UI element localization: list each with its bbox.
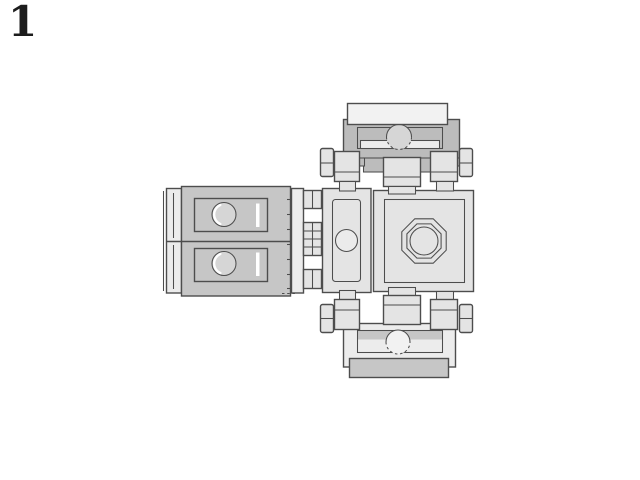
top-cap <box>348 104 448 125</box>
connector-pin <box>335 152 360 182</box>
pin-foot <box>437 182 454 192</box>
pin-foot <box>340 182 356 192</box>
recess-highlight <box>256 253 260 277</box>
top-bracket <box>321 104 473 195</box>
recess-highlight <box>256 204 260 228</box>
bottom-cap <box>350 359 449 378</box>
connector-pin <box>335 300 360 330</box>
pin-foot <box>340 291 356 301</box>
block-body <box>374 191 474 292</box>
pin-foot <box>389 187 416 195</box>
connector-pin <box>384 158 421 187</box>
instruction-page: 1 <box>0 0 640 480</box>
connector-pin <box>431 152 458 182</box>
center-plate <box>323 189 372 293</box>
stud-icon <box>212 252 236 276</box>
center-hole <box>336 230 358 252</box>
bottom-bracket <box>321 288 473 378</box>
left-plate-pair <box>164 187 291 297</box>
hinge-bar <box>292 189 304 294</box>
stud-icon <box>212 203 236 227</box>
pin-foot <box>389 288 416 296</box>
assembly-diagram <box>0 0 640 480</box>
connector-pin <box>431 300 458 330</box>
turntable-block <box>374 191 474 292</box>
connector-pin <box>384 296 421 325</box>
